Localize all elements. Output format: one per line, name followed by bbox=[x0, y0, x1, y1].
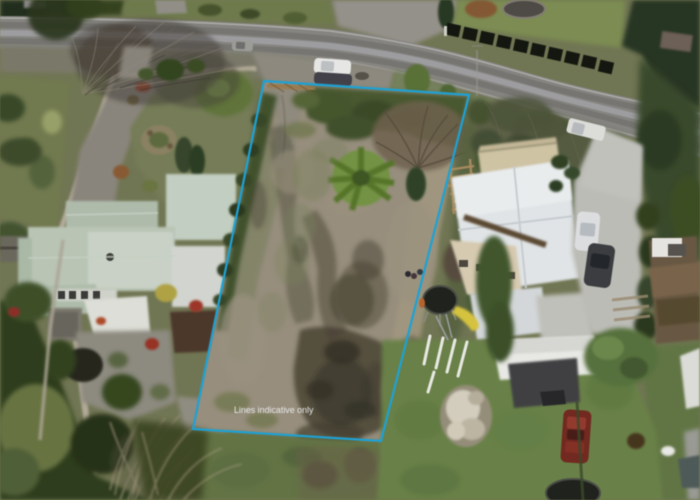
svg-text:Lines indicative only: Lines indicative only bbox=[234, 405, 314, 415]
